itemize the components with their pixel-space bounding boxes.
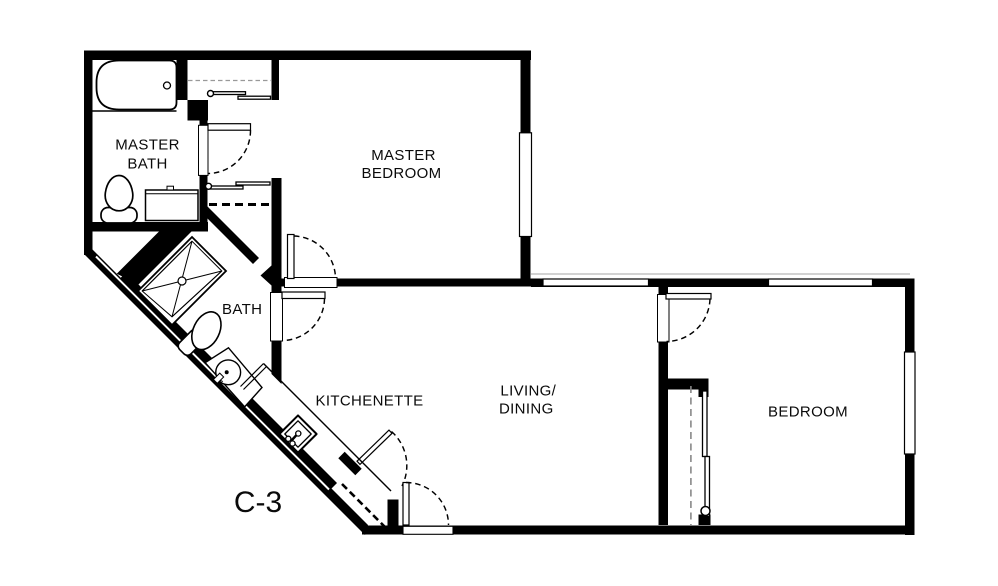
svg-text:LIVING/: LIVING/ [500,383,556,400]
svg-text:BATH: BATH [127,156,167,173]
svg-text:BEDROOM: BEDROOM [768,404,848,421]
svg-text:MASTER: MASTER [115,137,180,154]
svg-text:C-3: C-3 [234,486,282,519]
svg-text:KITCHENETTE: KITCHENETTE [315,393,423,410]
svg-text:BEDROOM: BEDROOM [362,165,442,182]
svg-text:DINING: DINING [499,401,554,418]
svg-text:BATH: BATH [222,301,262,318]
svg-text:MASTER: MASTER [371,147,436,164]
